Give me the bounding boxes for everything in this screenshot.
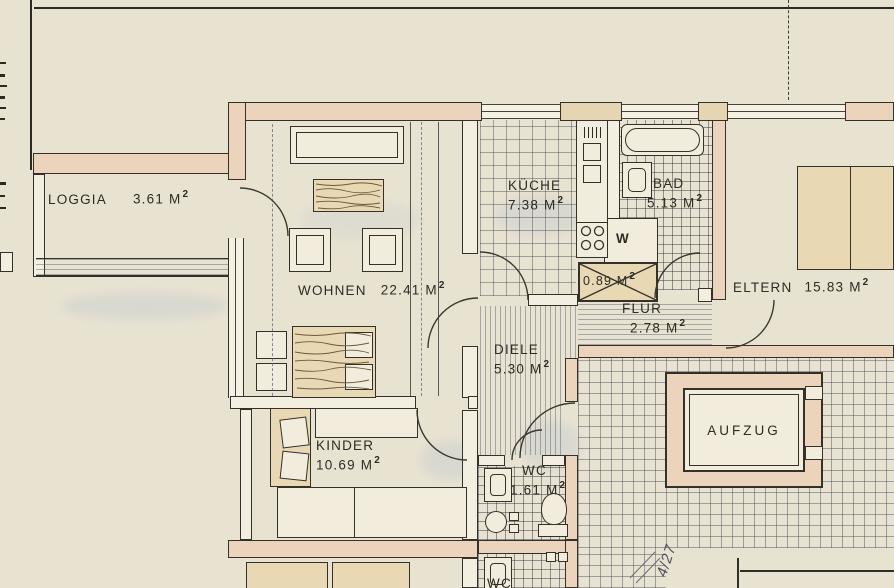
lower-unit-furniture [246, 562, 328, 588]
room-label-loggia: LOGGIA 3.61 M2 [48, 190, 189, 207]
sheet-frame-top-line [34, 7, 894, 9]
door-arc [240, 188, 288, 236]
washbasin [484, 468, 512, 502]
room-name: KINDER [316, 438, 381, 454]
wall [565, 540, 578, 588]
wall [578, 345, 894, 358]
bed [797, 166, 894, 270]
door-arc [428, 298, 478, 348]
lower-unit-furniture [332, 562, 410, 588]
kitchen-module [583, 165, 601, 183]
armchair [289, 228, 331, 272]
room-name: LOGGIA [48, 192, 107, 207]
room-name: ELTERN [733, 280, 792, 295]
room-label-aufzug: AUFZUG [683, 388, 805, 472]
sheet-frame-left-line [30, 0, 32, 170]
window [622, 104, 698, 119]
toilet-tank [538, 524, 568, 537]
wall [228, 102, 482, 121]
room-name: BAD [653, 176, 703, 192]
bed [277, 487, 467, 538]
beam-line [438, 122, 439, 396]
shaft [604, 218, 658, 264]
wall [240, 409, 252, 540]
kitchen-sink [583, 143, 601, 161]
window-wall [228, 238, 244, 398]
armchair [362, 228, 403, 272]
scan-smudge [60, 292, 230, 320]
bathtub [621, 124, 704, 156]
dining-chair [345, 364, 373, 390]
wall [462, 120, 478, 254]
room-label-flur: FLUR 2.78 M2 [620, 301, 686, 337]
beam-line [410, 122, 411, 396]
wall [462, 558, 478, 588]
floor-plan: LOGGIA 3.61 M2 WOHNEN 22.41 M2 KÜCHE 7.3… [0, 0, 894, 588]
closet-area-label: 0.89 M2 [583, 272, 636, 288]
cistern-box [509, 524, 519, 533]
ceiling-dashed-line [272, 124, 273, 396]
wall [528, 294, 578, 306]
room-name: DIELE [494, 342, 550, 358]
stove [576, 222, 608, 258]
wall [468, 396, 478, 409]
wall [712, 120, 726, 300]
room-label-kueche: KÜCHE 7.38 M2 [508, 178, 564, 214]
wall [698, 288, 712, 302]
elevator-door-jamb [805, 386, 823, 400]
loggia-top-wall [33, 153, 230, 174]
wall [228, 102, 246, 180]
wall [462, 346, 478, 398]
chair [280, 451, 310, 482]
window [482, 104, 560, 119]
room-name: WC [522, 463, 566, 479]
stair-landing-tiles [578, 548, 666, 588]
loggia-railing [36, 258, 232, 277]
cutlery-drawer [584, 127, 604, 139]
room-name: FLUR [622, 301, 686, 317]
cistern-box [509, 512, 519, 521]
coffee-table [313, 179, 384, 212]
room-label-diele: DIELE 5.30 M2 [494, 342, 550, 378]
elevator-door-jamb [805, 446, 823, 460]
room-label-wohnen: WOHNEN 22.41 M2 [298, 281, 446, 298]
wall [565, 358, 578, 402]
wall [560, 102, 622, 121]
door-arc [726, 300, 774, 348]
cistern-box [546, 552, 556, 562]
window [728, 104, 845, 119]
ceiling-dashed-line [421, 122, 422, 396]
room-label-eltern: ELTERN 15.83 M2 [733, 278, 869, 295]
wall [478, 455, 505, 466]
dining-chair [345, 332, 373, 358]
wall [228, 540, 478, 558]
wall [845, 102, 894, 121]
wall [606, 120, 620, 220]
washing-machine [485, 511, 507, 533]
room-label-wc: WC 1.61 M2 [510, 463, 566, 499]
room-name: KÜCHE [508, 178, 564, 194]
chair [279, 416, 309, 448]
room-label-bad: BAD 5.13 M2 [647, 176, 703, 212]
room-name: WOHNEN [298, 283, 367, 298]
wall [698, 102, 728, 121]
room-label-wc-lower: WC [487, 576, 512, 588]
axis-dashed-line [788, 0, 789, 100]
sofa [290, 126, 404, 164]
shaft-label-w: W [616, 231, 630, 246]
wall-stub-line [740, 570, 894, 572]
wall-stub-line [737, 558, 739, 588]
wall-stub [0, 252, 13, 272]
desk [315, 408, 418, 438]
room-label-kinder: KINDER 10.69 M2 [316, 438, 381, 474]
cistern-box [558, 552, 568, 562]
